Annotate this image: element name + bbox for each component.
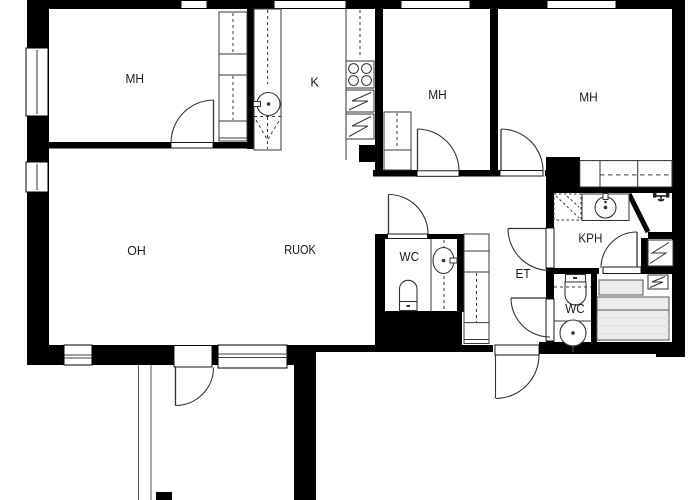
svg-text:RUOK: RUOK xyxy=(284,243,316,257)
svg-text:K: K xyxy=(310,76,319,90)
svg-text:MH: MH xyxy=(428,88,447,102)
svg-text:MH: MH xyxy=(579,90,598,104)
svg-text:MH: MH xyxy=(125,72,144,86)
svg-text:KPH: KPH xyxy=(578,232,602,246)
svg-text:ET: ET xyxy=(516,267,531,281)
svg-text:OH: OH xyxy=(127,244,146,258)
svg-text:WC: WC xyxy=(400,250,420,264)
svg-text:WC: WC xyxy=(565,302,585,316)
